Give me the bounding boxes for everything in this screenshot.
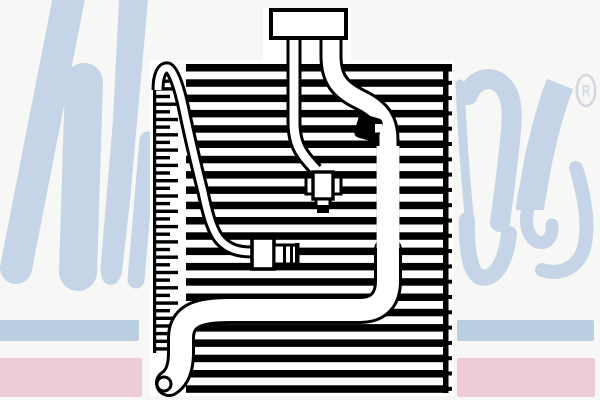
svg-text:R: R — [582, 82, 591, 101]
